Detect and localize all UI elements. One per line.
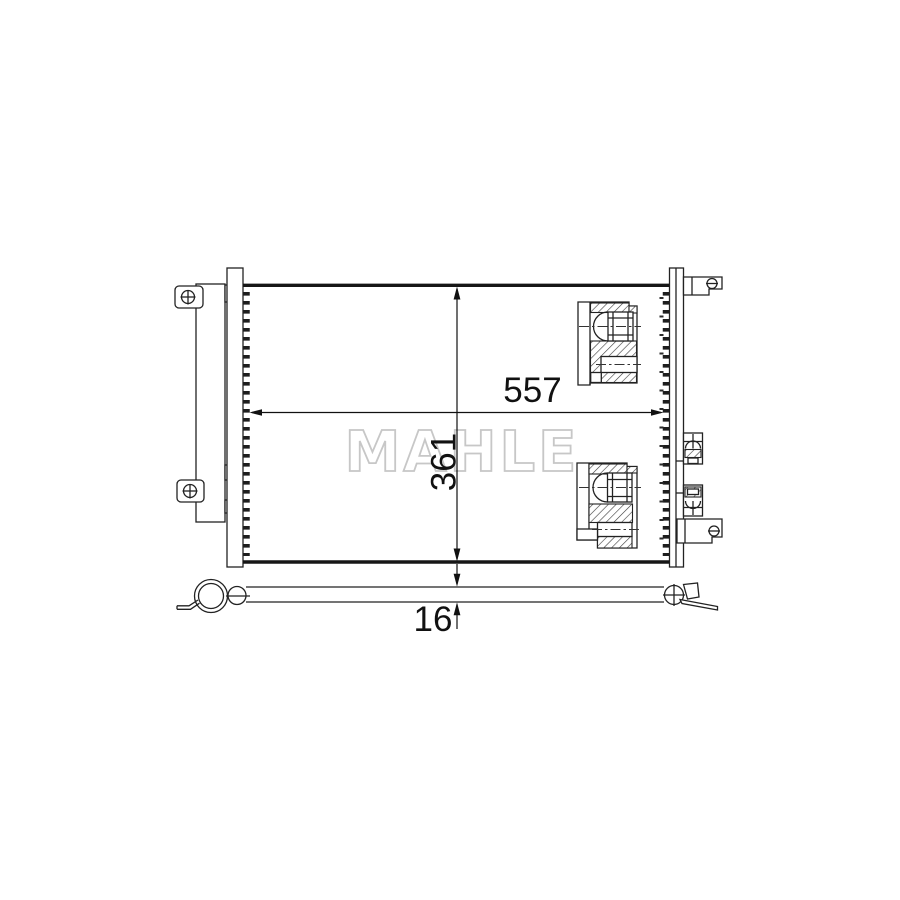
- dimension-height-label: 361: [425, 433, 464, 491]
- left-mount-tab-top: [175, 286, 203, 308]
- connection-block-lower: [577, 463, 641, 548]
- dimension-width-label: 557: [503, 371, 561, 410]
- condenser-technical-drawing: MAHLE: [0, 0, 900, 900]
- drawing-stage: MAHLE: [0, 0, 900, 900]
- connection-block-upper: [578, 302, 641, 385]
- dimension-thickness-label: 16: [414, 600, 453, 639]
- side-pipe-ring-left: [195, 580, 228, 613]
- left-header-tank: [227, 268, 243, 567]
- left-mount-tab-bottom: [177, 480, 204, 502]
